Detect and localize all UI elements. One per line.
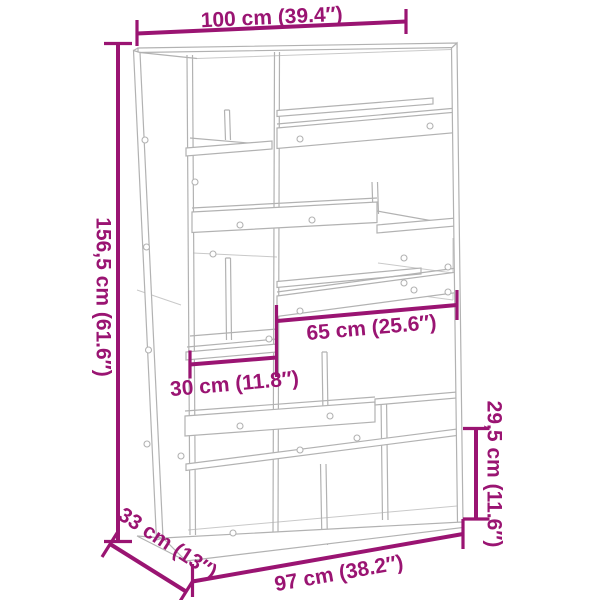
- dimension-small-shelf-width: 30 cm (11.8″): [169, 351, 300, 402]
- dimension-height: 156,5 cm (61.6″): [92, 44, 133, 542]
- product-dimension-diagram: 100 cm (39.4″) 156,5 cm (61.6″) 65 cm (2…: [0, 0, 600, 600]
- dim-height-label: 156,5 cm (61.6″): [92, 217, 115, 377]
- furniture-illustration: [134, 43, 464, 561]
- dimension-diagram-svg: 100 cm (39.4″) 156,5 cm (61.6″) 65 cm (2…: [0, 0, 600, 600]
- dimension-compartment-height: 29,5 cm (11.6″): [463, 401, 506, 548]
- dimension-top-width: 100 cm (39.4″): [137, 3, 406, 46]
- dim-compartment-height-label: 29,5 cm (11.6″): [483, 401, 506, 548]
- dim-top-width-label: 100 cm (39.4″): [200, 3, 343, 32]
